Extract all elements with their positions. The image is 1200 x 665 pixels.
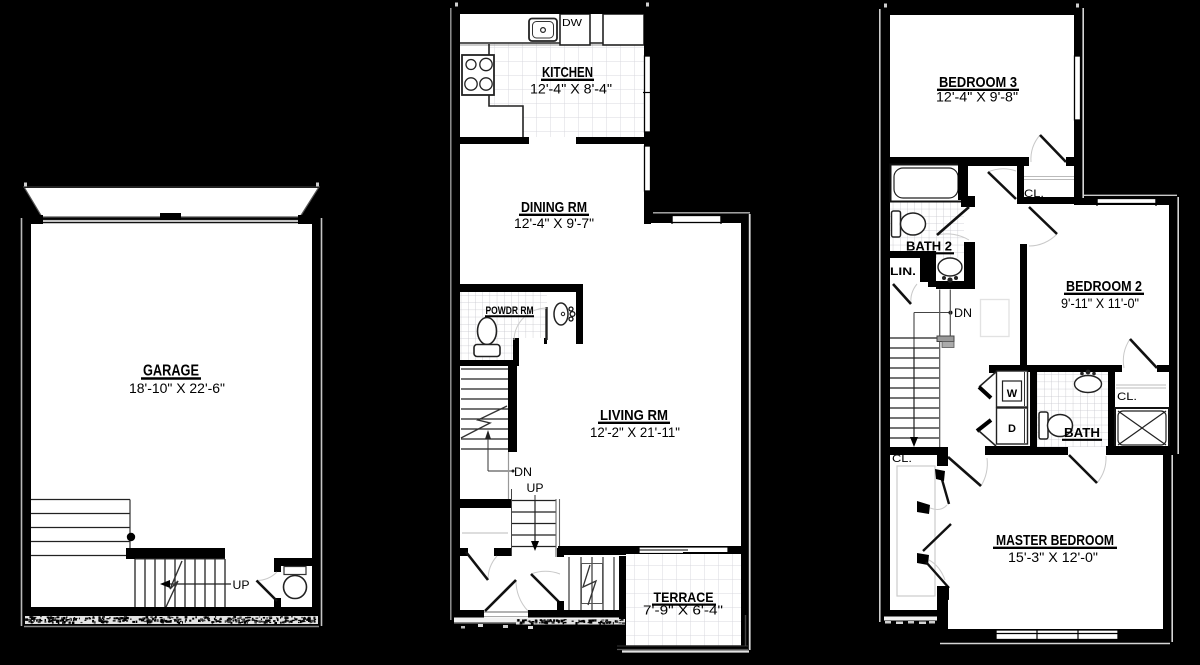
svg-text:UP: UP	[527, 483, 544, 495]
svg-text:DINING RM: DINING RM	[521, 199, 587, 216]
svg-text:UP: UP	[233, 580, 250, 592]
svg-text:MASTER BEDROOM: MASTER BEDROOM	[996, 532, 1114, 549]
svg-text:W: W	[1007, 388, 1018, 400]
svg-text:9'-11" X 11'-0": 9'-11" X 11'-0"	[1061, 296, 1139, 311]
svg-text:BEDROOM 3: BEDROOM 3	[939, 74, 1017, 91]
svg-text:BEDROOM 2: BEDROOM 2	[1066, 278, 1142, 295]
svg-text:LIN.: LIN.	[890, 266, 916, 278]
svg-text:D: D	[1008, 423, 1016, 435]
svg-text:18'-10" X 22'-6": 18'-10" X 22'-6"	[129, 381, 225, 396]
svg-text:DW: DW	[562, 17, 582, 29]
svg-text:12'-4" X 8'-4": 12'-4" X 8'-4"	[530, 82, 612, 97]
svg-text:BATH: BATH	[1064, 425, 1100, 440]
svg-text:12'-4" X 9'-7": 12'-4" X 9'-7"	[514, 216, 594, 231]
svg-text:CL.: CL.	[892, 453, 912, 465]
svg-text:GARAGE: GARAGE	[143, 363, 199, 380]
svg-text:15'-3" X 12'-0": 15'-3" X 12'-0"	[1008, 550, 1098, 565]
svg-text:DN: DN	[954, 308, 972, 320]
svg-text:KITCHEN: KITCHEN	[542, 64, 593, 81]
svg-text:12'-2" X 21'-11": 12'-2" X 21'-11"	[590, 425, 680, 440]
svg-text:POWDR RM: POWDR RM	[486, 305, 534, 317]
svg-text:CL.: CL.	[1024, 188, 1044, 200]
svg-text:12'-4" X 9'-8": 12'-4" X 9'-8"	[936, 90, 1018, 105]
svg-text:DN: DN	[514, 467, 532, 479]
svg-text:CL.: CL.	[1117, 391, 1137, 403]
svg-text:LIVING RM: LIVING RM	[600, 407, 668, 424]
svg-text:7'-9" X 6'-4": 7'-9" X 6'-4"	[643, 604, 723, 618]
